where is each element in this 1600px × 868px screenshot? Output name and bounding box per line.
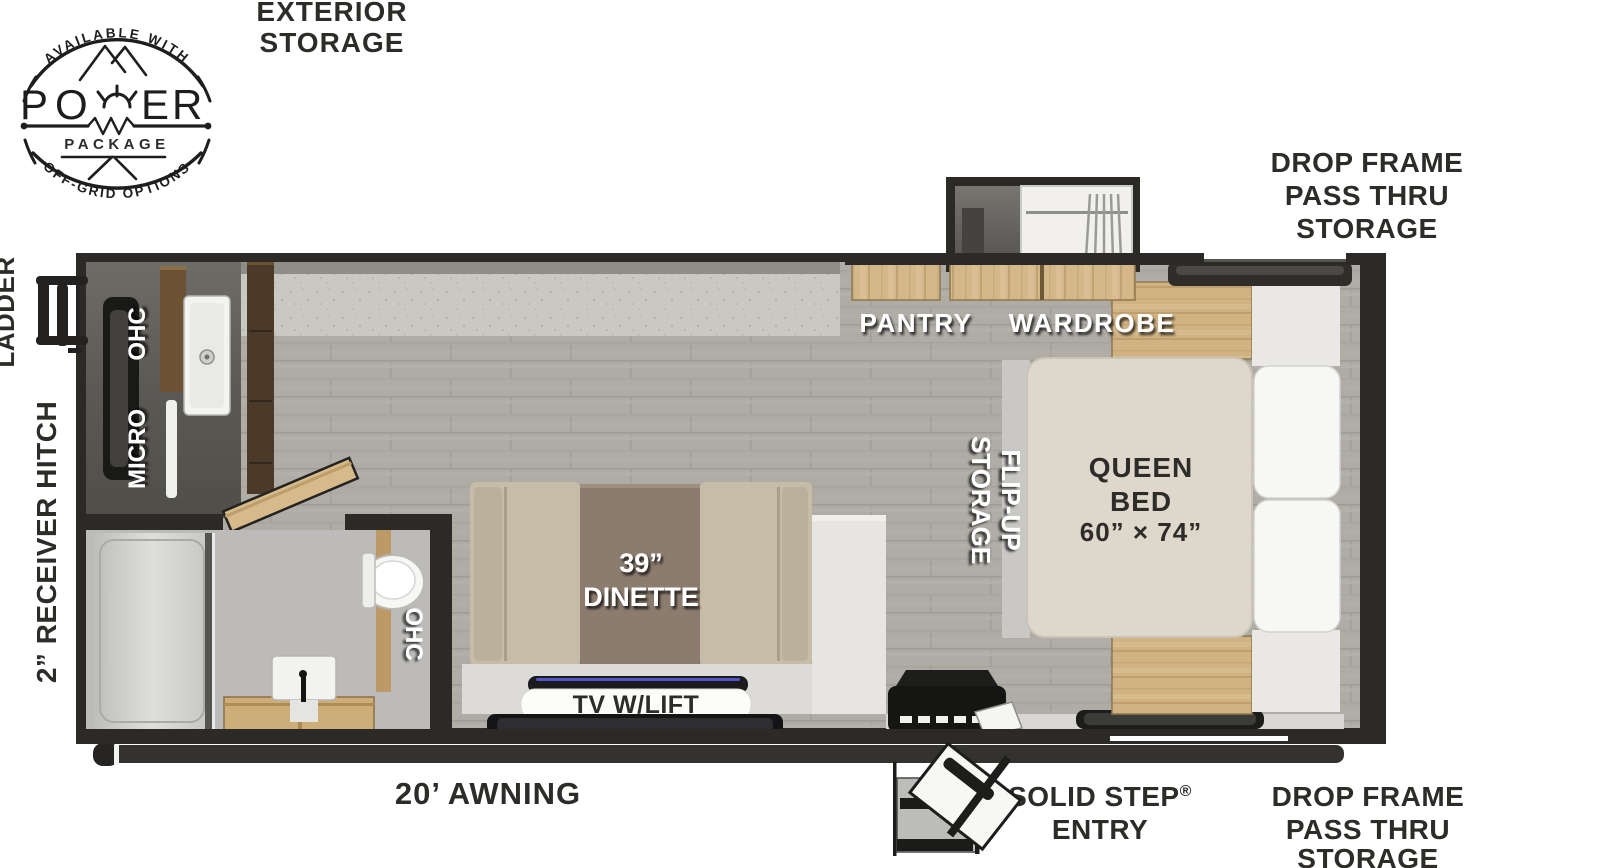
svg-text:DROP FRAME: DROP FRAME	[1272, 781, 1465, 812]
svg-text:ENTRY: ENTRY	[1052, 814, 1148, 845]
svg-text:WARDROBE: WARDROBE	[1009, 308, 1176, 338]
svg-text:PASS THRU: PASS THRU	[1286, 814, 1450, 845]
svg-text:R: R	[172, 81, 204, 128]
svg-text:PACKAGE: PACKAGE	[64, 136, 169, 153]
svg-text:STORAGE: STORAGE	[1296, 213, 1437, 244]
svg-text:O: O	[55, 81, 90, 128]
svg-text:PASS THRU: PASS THRU	[1285, 180, 1449, 211]
svg-text:STORAGE: STORAGE	[1297, 843, 1438, 868]
svg-text:DROP FRAME: DROP FRAME	[1271, 147, 1464, 178]
svg-text:EXTERIOR: EXTERIOR	[256, 0, 407, 27]
svg-text:SOLID STEP®: SOLID STEP®	[1008, 781, 1192, 812]
svg-text:OHC: OHC	[124, 307, 151, 360]
svg-text:39”: 39”	[619, 548, 663, 578]
svg-text:PANTRY: PANTRY	[860, 308, 973, 338]
svg-text:60” × 74”: 60” × 74”	[1080, 517, 1202, 547]
svg-text:QUEEN: QUEEN	[1089, 452, 1194, 483]
svg-text:2” RECEIVER HITCH: 2” RECEIVER HITCH	[31, 401, 62, 683]
svg-text:FLIP-UPSTORAGE: FLIP-UPSTORAGE	[966, 436, 1026, 564]
svg-text:MICRO: MICRO	[124, 409, 151, 489]
svg-text:BED: BED	[1110, 486, 1172, 517]
svg-text:STORAGE: STORAGE	[260, 27, 405, 58]
svg-text:OHC: OHC	[400, 607, 427, 660]
svg-text:E: E	[141, 81, 171, 128]
svg-text:DINETTE: DINETTE	[583, 582, 699, 612]
svg-text:LADDER: LADDER	[0, 256, 20, 367]
svg-text:20’ AWNING: 20’ AWNING	[395, 776, 581, 811]
svg-text:P: P	[20, 81, 50, 128]
